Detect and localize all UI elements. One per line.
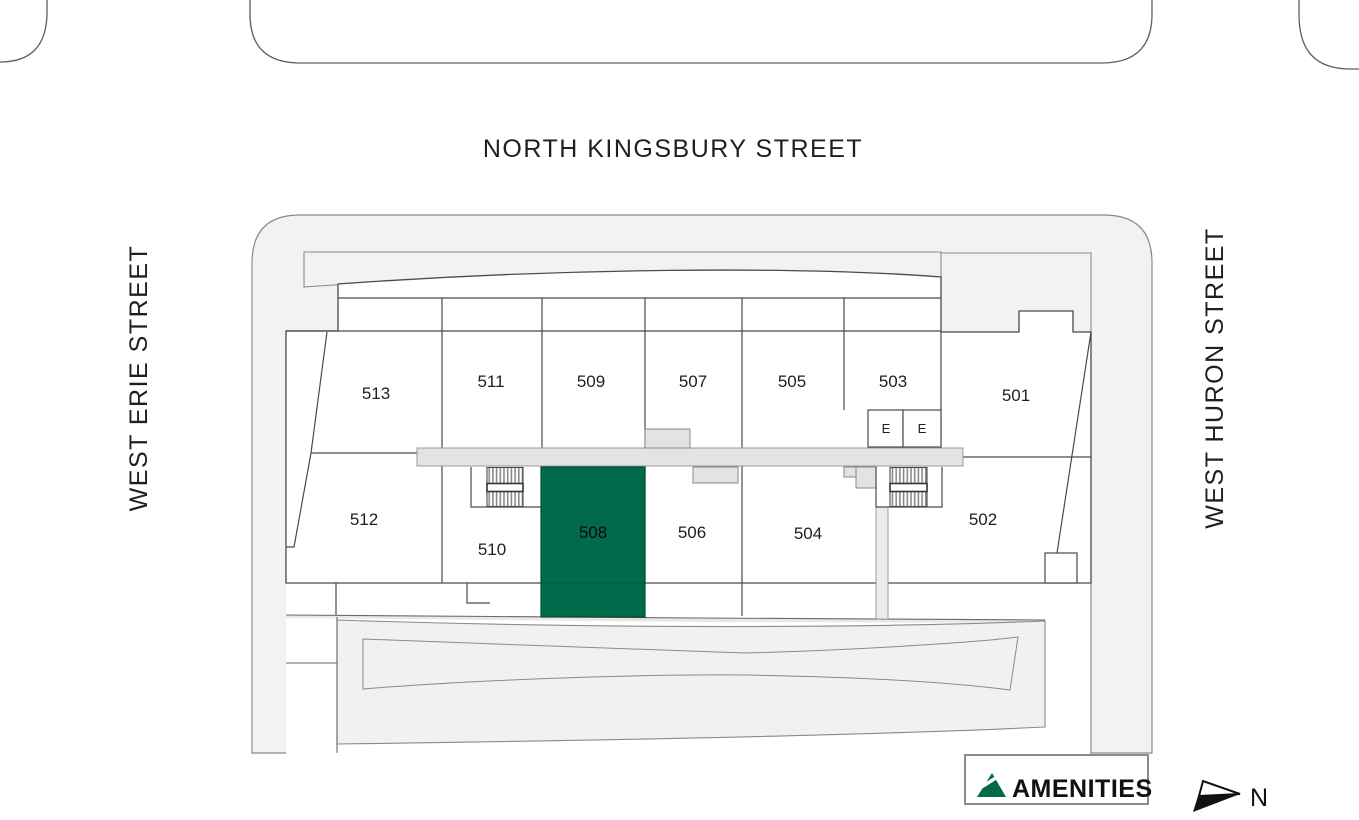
unit-502-label: 502 [969, 510, 997, 529]
unit-508-shape[interactable] [541, 467, 645, 617]
unit-510-label: 510 [478, 540, 506, 559]
north-arrow: N [1193, 781, 1268, 812]
unit-513[interactable]: 513 [362, 384, 390, 403]
unit-505-label: 505 [778, 372, 806, 391]
unit-502[interactable]: 502 [969, 510, 997, 529]
unit-512-label: 512 [350, 510, 378, 529]
street-label-kingsbury: NORTH KINGSBURY STREET [483, 135, 863, 163]
curb-top-left-corner [0, 0, 47, 62]
unit-512[interactable]: 512 [350, 510, 378, 529]
unit-513-label: 513 [362, 384, 390, 403]
unit-508[interactable]: 508 [541, 467, 645, 617]
unit-508-label: 508 [579, 523, 607, 542]
walkway-south [876, 507, 888, 619]
street-label-huron: WEST HURON STREET [1201, 227, 1229, 528]
unit-505[interactable]: 505 [778, 372, 806, 391]
elevator-1-label: E [882, 421, 891, 436]
unit-511[interactable]: 511 [477, 372, 504, 391]
unit-503-label: 503 [879, 372, 907, 391]
corridor [417, 448, 963, 466]
north-arrow-icon [1199, 781, 1240, 796]
unit-510[interactable]: 510 [478, 540, 506, 559]
street-curb-lines [0, 0, 1359, 69]
corridor-step-b [856, 467, 876, 488]
unit-511-label: 511 [477, 372, 504, 391]
curb-top-right-corner [1299, 0, 1359, 69]
amenities-legend-label: AMENITIES [1012, 775, 1153, 803]
north-arrow-label: N [1250, 784, 1268, 812]
unit-503[interactable]: 503 [879, 372, 907, 391]
elevator-bank: E E [868, 410, 941, 447]
unit-509-label: 509 [577, 372, 605, 391]
site-plan: E E 508 513 511 509 507 505 503 501 512 … [0, 0, 1359, 820]
unit-507[interactable]: 507 [679, 372, 707, 391]
corridor-bump-north [645, 429, 690, 448]
curb-kingsbury [250, 0, 1152, 63]
patio-bump-502 [1045, 553, 1077, 583]
amenities-legend[interactable]: AMENITIES [965, 755, 1153, 804]
corridor-step-a [844, 467, 856, 477]
street-label-erie: WEST ERIE STREET [125, 245, 153, 512]
unit-509[interactable]: 509 [577, 372, 605, 391]
unit-507-label: 507 [679, 372, 707, 391]
unit-501[interactable]: 501 [1002, 386, 1030, 405]
unit-504-label: 504 [794, 524, 822, 543]
unit-501-label: 501 [1002, 386, 1030, 405]
corridor-notch-506 [693, 467, 738, 483]
elevator-2-label: E [918, 421, 927, 436]
unit-506-label: 506 [678, 523, 706, 542]
unit-504[interactable]: 504 [794, 524, 822, 543]
unit-506[interactable]: 506 [678, 523, 706, 542]
